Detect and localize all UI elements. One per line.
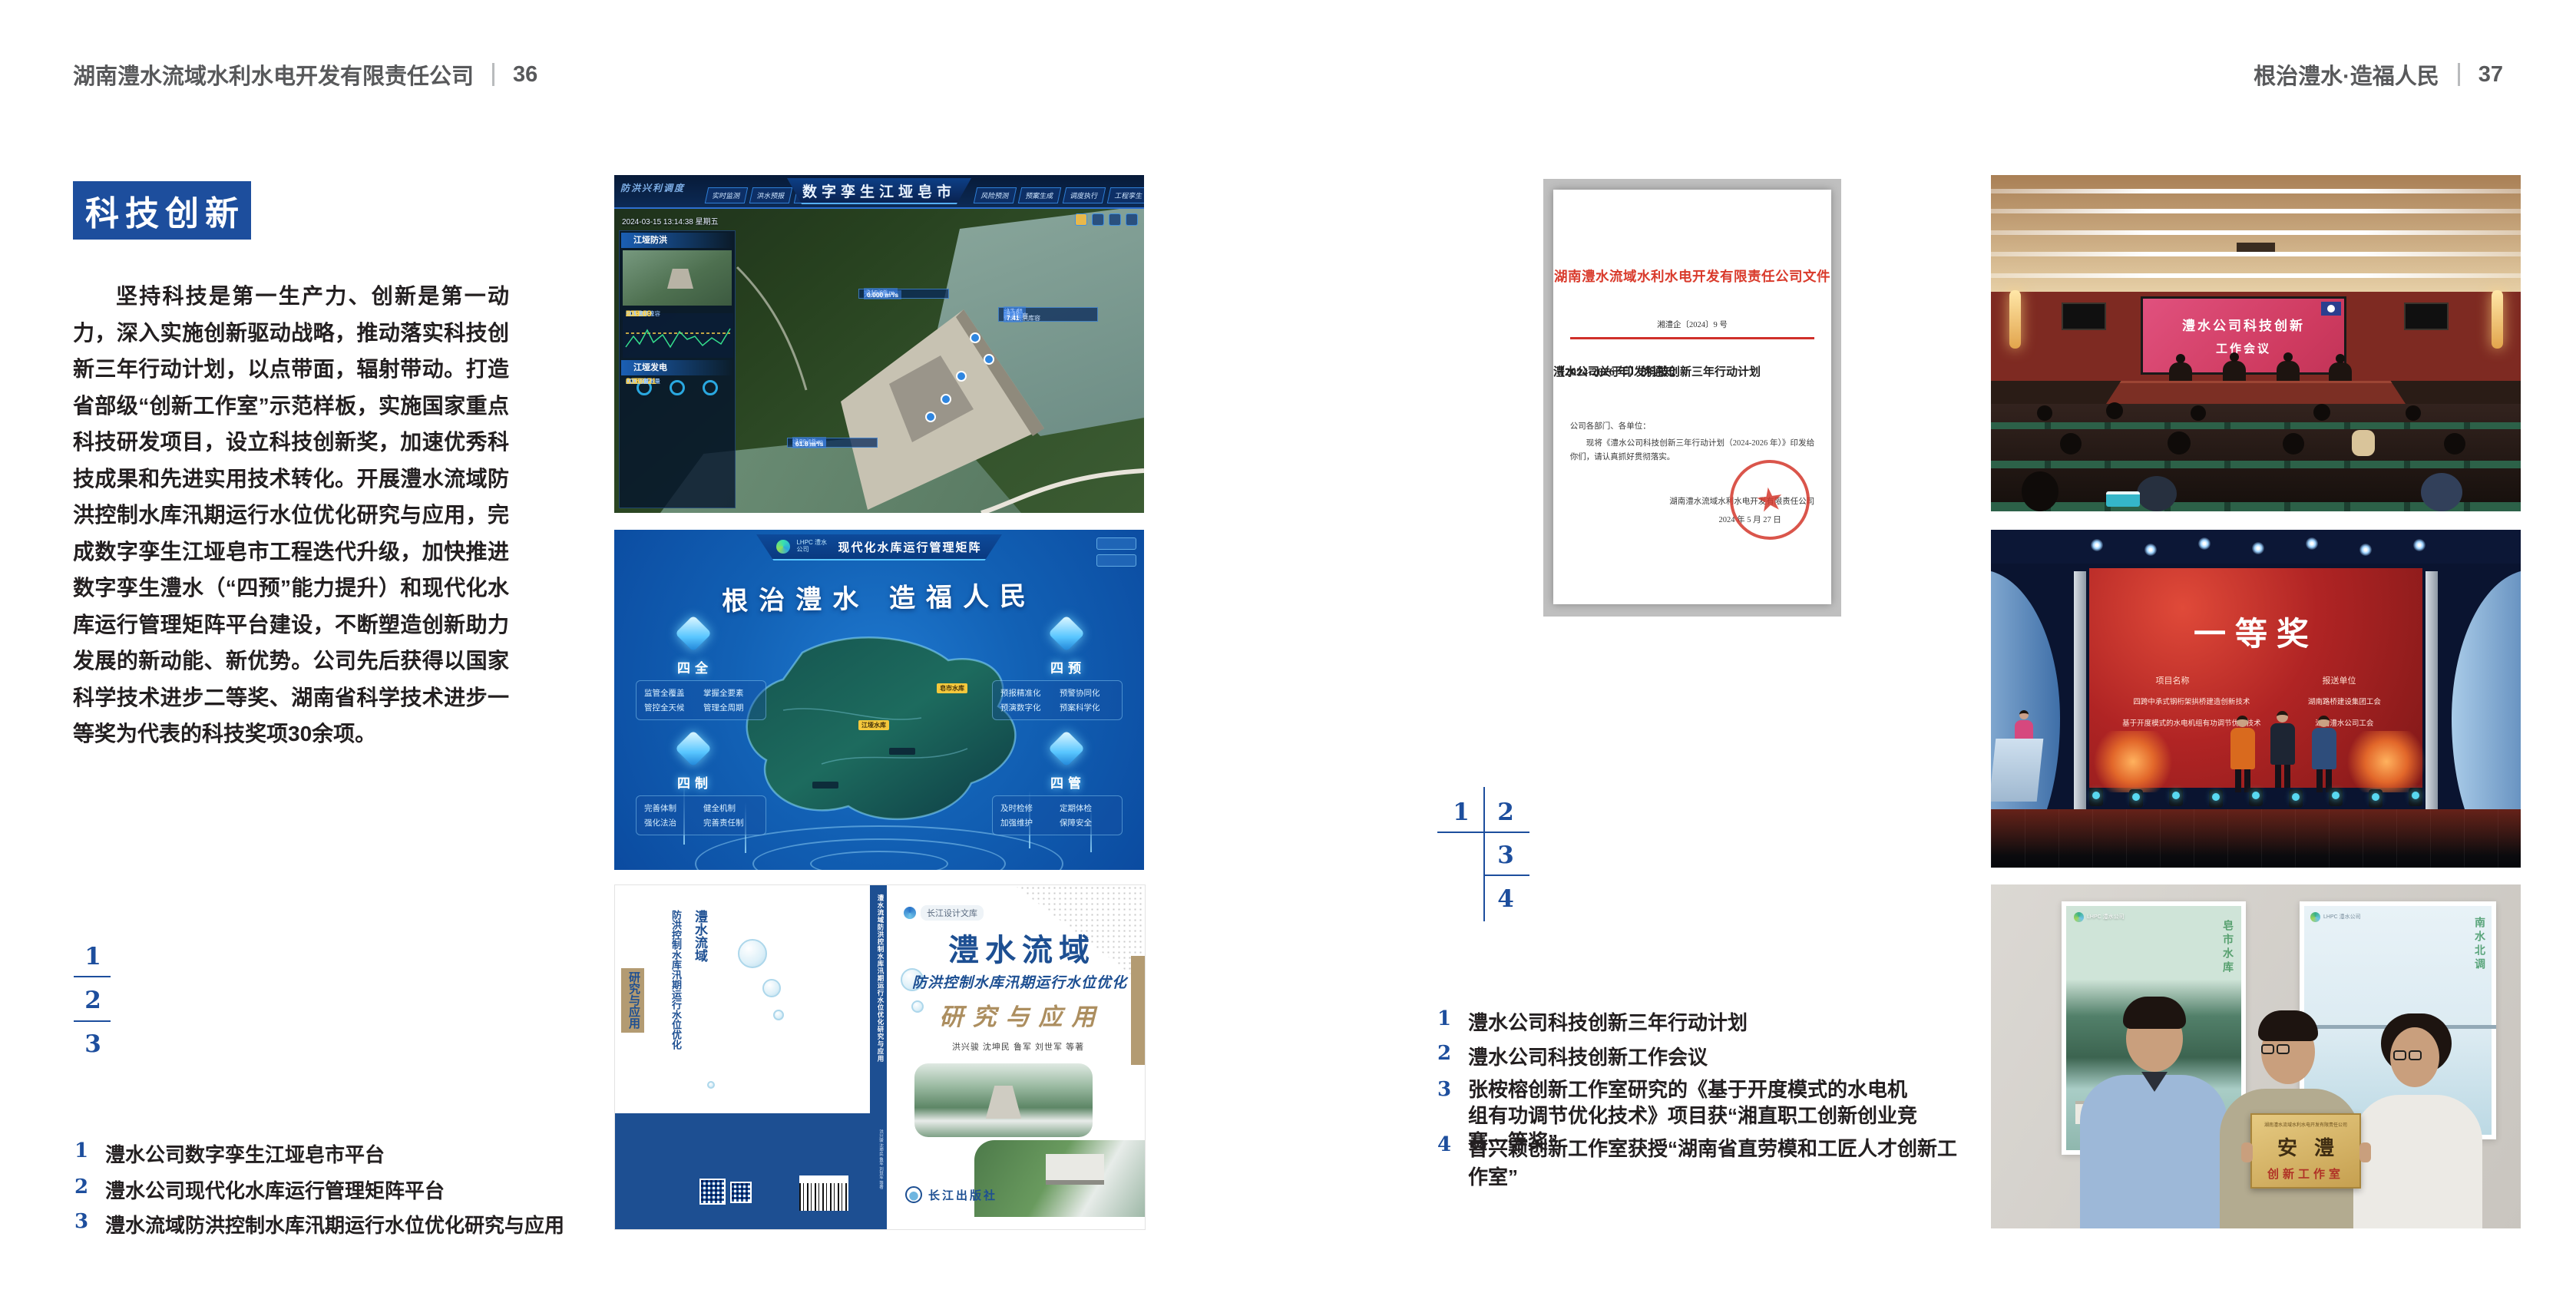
company-logo-icon (2074, 912, 2084, 922)
screen-title-line2: 工作会议 (2216, 340, 2271, 356)
meeting-screen: 澧水公司科技创新 工作会议 (2141, 296, 2346, 375)
group-icon-siguan (1048, 730, 1085, 767)
poster-logo: LHPC 澧水公司 (2310, 912, 2361, 922)
series-name: 长江设计文库 (921, 905, 984, 921)
person-left-hair (2123, 997, 2186, 1029)
screen-column-headers: 项目名称 报送单位 (2089, 674, 2422, 686)
dashboard-tab: 工程孪生 (1107, 187, 1144, 203)
group-title: 四管 (1033, 772, 1103, 792)
awardee-orange (2229, 716, 2257, 792)
left-page-number: 36 (513, 62, 537, 88)
photo-award-ceremony: 一等奖 项目名称 报送单位 四跨中承式钢桁架拱桥建造创新技术 湖南路桥建设集团工… (1991, 530, 2521, 868)
group-icon-sizhi (675, 730, 712, 767)
publisher-name: 长江出版社 (928, 1187, 997, 1203)
caption-text: 澧水公司数字孪生江垭皂市平台 (105, 1139, 385, 1168)
stat-value: 0.00 (626, 377, 642, 386)
group-item: 管控全天候 (644, 702, 699, 713)
figure-index-2: 2 (82, 987, 104, 1014)
document-red-rule (1570, 337, 1815, 339)
column-org: 报送单位 (2256, 674, 2422, 686)
group-icon-siyu (1048, 615, 1085, 652)
spine-authors: 洪兴骏 沈坤民 鲁军 刘世军 等著 (873, 1129, 884, 1222)
topbar-button (1096, 537, 1136, 550)
company-name: 湖南澧水流域水利水电开发有限责任公司 (73, 58, 474, 91)
caption-number: 2 (74, 1175, 93, 1199)
winner-org: 湖南澧水公司工会 (2280, 717, 2409, 728)
dashboard-tab: 预案生成 (1018, 187, 1061, 203)
dashboard-corner-label: 防洪兴利调度 (620, 181, 685, 194)
matrix-brand: LHPC 澧水公司 (796, 540, 832, 554)
book-title-tail: 研究与应用 (907, 997, 1137, 1032)
locate-icon (1109, 213, 1121, 226)
dashboard-tab: 风险预测 (974, 187, 1017, 203)
poster-brand-text: LHPC 澧水公司 (2323, 914, 2361, 920)
group-item: 完善责任制 (703, 817, 758, 828)
figure-index-2: 2 (1495, 798, 1516, 826)
dashboard-tab: 实时监测 (705, 187, 748, 203)
back-title-2: 防洪控制水库汛期运行水位优化 (669, 910, 683, 1086)
group-item: 加强维护 (1000, 817, 1055, 828)
figure-index-vline (1483, 787, 1485, 921)
presidium-person (2329, 362, 2352, 382)
group-item: 预警协同化 (1060, 687, 1114, 699)
matrix-slogan: 根治澧水 造福人民 (614, 573, 1144, 620)
poster-logo: LHPC 澧水公司 (2074, 912, 2125, 922)
barcode (799, 1175, 848, 1211)
company-logo-icon (2310, 912, 2320, 922)
column-project: 项目名称 (2089, 674, 2256, 686)
group-title: 四制 (660, 772, 729, 792)
caption-number: 2 (1437, 1042, 1456, 1065)
group-panel-siquan: 监管全覆盖掌握全要素管控全天候管理全周期 (636, 680, 766, 720)
caption-number: 1 (74, 1139, 93, 1162)
capacity-callout: 总库容 17.41 蓄水量 8.10 防洪库容 7.41 剩余防洪库容 7.41 (998, 307, 1098, 322)
header-divider (492, 63, 494, 86)
figure-index-3: 3 (1495, 841, 1516, 869)
tissue-box (2106, 491, 2140, 507)
photo-book-cover: 澧水流域防洪控制水库汛期运行水位优化研究与应用 洪兴骏 沈坤民 鲁军 刘世军 等… (614, 884, 1146, 1230)
spine-title: 澧水流域防洪控制水库汛期运行水位优化研究与应用 (871, 894, 885, 1125)
presidium-person (2277, 361, 2300, 381)
caption-number: 1 (1437, 1007, 1456, 1030)
publisher-logo-icon (905, 1186, 922, 1203)
caption-text: 澧水公司现代化水库运行管理矩阵平台 (105, 1175, 445, 1204)
audience-desk-row (1991, 422, 2521, 429)
caption-4: 4 曾兴颖创新工作室获授“湖南省直劳模和工匠人才创新工作室” (1437, 1133, 1959, 1190)
stat-value: 219.60 (626, 309, 652, 319)
screen-title-line1: 澧水公司科技创新 (2182, 315, 2305, 334)
group-item: 及时检修 (1000, 802, 1055, 814)
group-item: 预案科学化 (1060, 702, 1114, 713)
caption-text: 澧水流域防洪控制水库汛期运行水位优化研究与应用 (105, 1210, 564, 1238)
presidium-person (2223, 361, 2246, 381)
poster-left-calligraphy: 皂市水库 (2220, 920, 2235, 1027)
glasses (2261, 1044, 2290, 1054)
screen-logo (2321, 302, 2341, 316)
wall-lamp (2009, 290, 2021, 349)
figure-index-hline (1483, 875, 1529, 876)
figure-index-1: 1 (82, 943, 104, 970)
left-page-header: 湖南澧水流域水利水电开发有限责任公司 36 (73, 58, 537, 91)
dashboard-title: 数字孪生江垭皂市 (787, 178, 971, 204)
group-item: 管理全周期 (703, 702, 758, 713)
wall-tv (2062, 303, 2106, 330)
caption-text: 澧水公司科技创新三年行动计划 (1468, 1007, 1748, 1036)
group-item: 预演数字化 (1000, 702, 1055, 713)
group-item: 健全机制 (703, 802, 758, 814)
group-title: 四预 (1033, 657, 1103, 676)
company-logo-icon (776, 540, 790, 554)
basin-terrain-map (729, 618, 1037, 848)
matrix-topbar: LHPC 澧水公司 现代化水库运行管理矩阵 (756, 534, 1002, 560)
plaque-type: 创新工作室 (2267, 1165, 2344, 1182)
qr-code (699, 1179, 726, 1205)
awardee-blue (2310, 716, 2338, 792)
document-red-header: 湖南澧水流域水利水电开发有限责任公司文件 (1553, 266, 1831, 286)
book-title-sub: 防洪控制水库汛期运行水位优化 (898, 971, 1142, 992)
document-salutation: 公司各部门、各单位： (1570, 420, 1651, 431)
caption-3: 3 澧水流域防洪控制水库汛期运行水位优化研究与应用 (74, 1210, 581, 1238)
presidium-table (2106, 381, 2406, 404)
group-item: 预报精准化 (1000, 687, 1055, 699)
winner-row: 四跨中承式钢桁架拱桥建造创新技术 湖南路桥建设集团工会 (2103, 696, 2409, 706)
plaque-company: 湖南澧水流域水利水电开发有限责任公司 (2264, 1121, 2347, 1128)
water-level-chart (623, 313, 733, 358)
section-title: 科技创新 (73, 181, 251, 240)
right-page-number: 37 (2478, 62, 2503, 88)
photo-official-document: 湖南澧水流域水利水电开发有限责任公司文件 湘澧企〔2024〕9 号 澧水公司关于… (1543, 179, 1841, 617)
caption-2: 2 澧水公司科技创新工作会议 (1437, 1042, 1959, 1070)
layers-icon (1092, 213, 1104, 226)
group-panel-sizhi: 完善体制健全机制强化法治完善责任制 (636, 795, 766, 835)
map-marker-jiangya: 江垭水库 (858, 720, 889, 730)
group-item: 定期体检 (1060, 802, 1114, 814)
figure-index-1: 1 (1450, 798, 1472, 826)
host-podium (1991, 739, 2043, 802)
dashboard-icon-cluster (1075, 213, 1138, 226)
group-icon-siquan (675, 615, 712, 652)
map-marker-station (889, 748, 915, 755)
publisher-logo: 长江出版社 (905, 1186, 997, 1203)
topbar-button (1096, 554, 1136, 567)
callout-value: 7.41 (1004, 313, 1023, 322)
downstream-callout: 坝下水位 106.19 m 出库流量 61.8 m³/s (787, 438, 878, 448)
dam-valley-photo (914, 1063, 1093, 1137)
document-paper: 湖南澧水流域水利水电开发有限责任公司文件 湘澧企〔2024〕9 号 澧水公司关于… (1553, 190, 1831, 604)
caption-number: 3 (74, 1210, 93, 1233)
callout-value: 61.8 m³/s (792, 439, 826, 448)
group-item: 监管全覆盖 (644, 687, 699, 699)
prize-title: 一等奖 (2089, 608, 2422, 655)
dashboard-topbar: 防洪兴利调度 实时监测洪水预报防洪预警 数字孪生江垭皂市 风险预测预案生成调度执… (614, 175, 1144, 209)
figure-index-divider (74, 976, 111, 977)
caption-1: 1 澧水公司科技创新三年行动计划 (1437, 1007, 1959, 1036)
back-title-3: 研究与应用 (626, 971, 642, 1040)
audience-person-cream (2352, 430, 2375, 456)
dam-camera-thumbnail (623, 250, 732, 306)
user-icon (1075, 213, 1087, 226)
group-title: 四全 (660, 657, 729, 676)
series-logo-icon (904, 907, 916, 919)
document-number: 湘澧企〔2024〕9 号 (1553, 319, 1831, 330)
qr-code (730, 1182, 752, 1203)
right-page-header: 根治澧水·造福人民 37 (1996, 58, 2503, 91)
caption-1: 1 澧水公司数字孪生江垭皂市平台 (74, 1139, 566, 1168)
map-marker-zaoshi: 皂市水库 (937, 683, 967, 693)
person-middle-hair (2258, 1010, 2318, 1041)
group-item: 完善体制 (644, 802, 699, 814)
figure-index-hline (1437, 832, 1529, 833)
wall-tv (2404, 303, 2449, 330)
person-right-torso (2353, 1095, 2482, 1228)
winner-org: 湖南路桥建设集团工会 (2280, 696, 2409, 706)
figure-index-3: 3 (82, 1030, 104, 1058)
callout-value: 0.000 m³/s (864, 290, 901, 299)
matrix-title: 现代化水库运行管理矩阵 (838, 539, 981, 555)
workshop-plaque: 湖南澧水流域水利水电开发有限责任公司 安澧 创新工作室 (2250, 1113, 2361, 1189)
back-title-1: 澧水流域 (690, 910, 709, 979)
poster-brand-text: LHPC 澧水公司 (2087, 914, 2125, 920)
caption-number: 4 (1437, 1133, 1456, 1156)
book-title-main: 澧水流域 (907, 925, 1137, 970)
photo-innovation-meeting: 澧水公司科技创新 工作会议 (1991, 175, 2521, 511)
caption-number: 3 (1437, 1076, 1456, 1103)
series-badge: 长江设计文库 (904, 905, 984, 921)
dashboard-tab: 洪水预报 (749, 187, 792, 203)
glasses (2393, 1050, 2422, 1060)
settings-icon (1126, 213, 1138, 226)
photo-innovation-workshop-group: LHPC 澧水公司 皂市水库 LHPC 澧水公司 南水北调 湖南澧水流域水利水电… (1991, 884, 2521, 1228)
ceiling-vent (2237, 243, 2275, 252)
front-tan-bar (1131, 956, 1145, 1065)
caption-text: 澧水公司科技创新工作会议 (1468, 1042, 1708, 1070)
dashboard-tab: 调度执行 (1063, 187, 1106, 203)
person-left-torso (2080, 1075, 2227, 1228)
winner-project: 四跨中承式钢桁架拱桥建造创新技术 (2103, 696, 2280, 706)
group-item: 掌握全要素 (703, 687, 758, 699)
company-seal: ★ (1724, 455, 1814, 544)
map-marker-station (812, 782, 838, 789)
magazine-spread: 湖南澧水流域水利水电开发有限责任公司 36 科技创新 坚持科技是第一生产力、创新… (0, 0, 2576, 1306)
presidium-person (2169, 362, 2192, 382)
group-panel-siguan: 及时检修定期体检加强维护保障安全 (992, 795, 1123, 835)
caption-2: 2 澧水公司现代化水库运行管理矩阵平台 (74, 1175, 566, 1204)
audience-desk-row (1991, 461, 2521, 468)
photo-digital-twin-dashboard: 防洪兴利调度 实时监测洪水预报防洪预警 数字孪生江垭皂市 风险预测预案生成调度执… (614, 175, 1144, 513)
dashboard-tabs-right: 风险预测预案生成调度执行工程孪生 (975, 187, 1144, 203)
page-slogan: 根治澧水·造福人民 (2254, 58, 2439, 91)
presenter-suit (2269, 711, 2297, 788)
wall-lamp (2492, 290, 2503, 349)
figure-index-4: 4 (1495, 885, 1516, 913)
flood-stats: 总库容 17.41 剩余防洪库容 7.41 坝上水位 215.69 蓄 (621, 308, 733, 311)
back-cover-band (615, 1113, 870, 1229)
caption-text: 曾兴颖创新工作室获授“湖南省直劳模和工匠人才创新工作室” (1468, 1133, 1959, 1190)
group-item: 强化法治 (644, 817, 699, 828)
photo-reservoir-matrix-platform: LHPC 澧水公司 现代化水库运行管理矩阵 根治澧水 造福人民 皂市水库 江垭水… (614, 530, 1144, 870)
audience-person-blue (2421, 473, 2462, 511)
book-authors: 洪兴骏 沈坤民 鲁军 刘世军 等著 (907, 1040, 1129, 1053)
header-divider (2458, 63, 2460, 86)
group-panel-siyu: 预报精准化预警协同化预演数字化预案科学化 (992, 680, 1123, 720)
meeting-ceiling (1991, 175, 2521, 292)
audience-person-blue (2137, 476, 2177, 511)
plaque-name: 安澧 (2260, 1132, 2351, 1161)
dam-front-photo (974, 1140, 1145, 1217)
upstream-callout: 坝上水位 215.69 m 入库流量 0.000 m³/s (858, 289, 949, 299)
dashboard-datetime: 2024-03-15 13:14:38 星期五 (622, 215, 719, 226)
flood-panel-title: 江垭防洪 (621, 233, 733, 248)
figure-index-divider (74, 1020, 111, 1022)
poster-right-calligraphy: 南水北调 (2472, 917, 2487, 1032)
power-panel-title: 江垭发电 (621, 360, 733, 375)
group-item: 保障安全 (1060, 817, 1114, 828)
dashboard-left-panel: 江垭防洪 总库容 17.41 剩余防洪库容 7.41 坝上水位 (619, 230, 736, 508)
section-paragraph: 坚持科技是第一生产力、创新是第一动力，深入实施创新驱动战略，推动落实科技创新三年… (73, 278, 509, 752)
